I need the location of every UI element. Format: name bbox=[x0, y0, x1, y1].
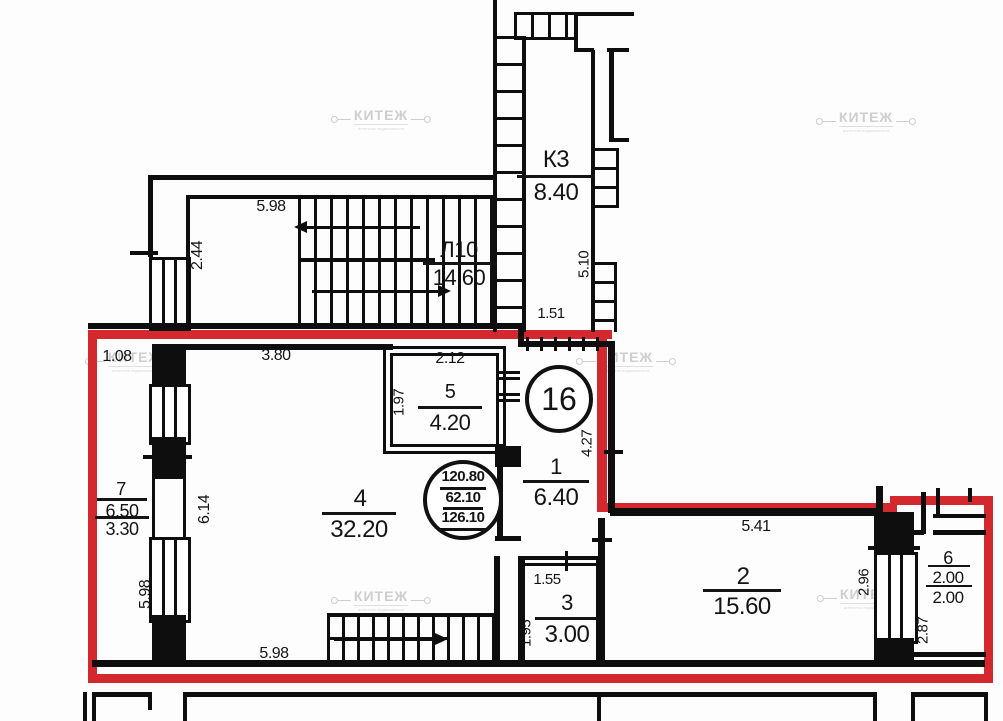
dim-label: 5.10 bbox=[574, 235, 594, 293]
wall-segment bbox=[83, 692, 87, 721]
room-k3-area: 8.40 bbox=[516, 181, 596, 205]
watermark: КИТЕЖагентство недвижимости bbox=[583, 349, 669, 373]
area-total: 120.80 bbox=[440, 469, 487, 490]
dim-label: 5.98 bbox=[249, 646, 299, 662]
watermark-brand: КИТЕЖ bbox=[354, 107, 408, 123]
dim-label: 2.44 bbox=[188, 226, 208, 284]
red-boundary-jog-right bbox=[890, 496, 993, 505]
room-2-area: 15.60 bbox=[702, 595, 782, 619]
wall-segment bbox=[609, 138, 629, 142]
wall-segment bbox=[495, 536, 521, 541]
watermark-brand: КИТЕЖ bbox=[354, 588, 408, 604]
dim-label: 2.12 bbox=[425, 351, 475, 367]
room-2-number: 2 bbox=[723, 565, 763, 589]
wall-tick bbox=[968, 488, 972, 502]
watermark: КИТЕЖагентство недвижимости bbox=[338, 588, 424, 612]
wall-segment bbox=[152, 461, 186, 479]
room-l10-area: 14.60 bbox=[419, 267, 499, 289]
watermark-flourish-icon bbox=[824, 598, 837, 599]
dim-label: 3.80 bbox=[251, 348, 301, 364]
wall-segment bbox=[494, 556, 500, 664]
room-3-number: 3 bbox=[547, 592, 587, 614]
wall-segment bbox=[95, 692, 152, 697]
wall-segment bbox=[609, 48, 614, 142]
wall-segment bbox=[933, 514, 986, 518]
wall-tick bbox=[565, 551, 568, 571]
red-boundary-left bbox=[88, 330, 97, 683]
wall-segment bbox=[518, 556, 604, 560]
room-1-divider bbox=[523, 480, 589, 483]
stair-arrow-up-head-icon bbox=[294, 221, 307, 233]
room-3-divider bbox=[535, 617, 599, 620]
wall-segment bbox=[596, 556, 605, 666]
wall-tick bbox=[130, 251, 158, 255]
wall-segment bbox=[574, 12, 578, 52]
dim-label: 1.97 bbox=[390, 374, 408, 430]
watermark: КИТЕЖагентство недвижимости bbox=[338, 107, 424, 131]
wall-tick bbox=[592, 538, 612, 542]
room-5-divider bbox=[418, 406, 482, 409]
room-6-area-total: 2.00 bbox=[925, 569, 971, 586]
dim-label: 1.55 bbox=[522, 572, 572, 587]
room-1-number: 1 bbox=[536, 456, 576, 478]
wall-tick bbox=[604, 450, 623, 454]
wall-tick bbox=[936, 488, 940, 516]
wall-segment bbox=[148, 692, 152, 710]
watermark-flourish-icon bbox=[338, 119, 351, 120]
room-7-area-counted: 3.30 bbox=[97, 520, 147, 538]
wall-hatch bbox=[526, 337, 608, 351]
wall-segment bbox=[183, 692, 877, 697]
room-6-divider-2 bbox=[926, 585, 972, 587]
wall-tick bbox=[143, 455, 192, 459]
dim-label: 2.87 bbox=[913, 602, 933, 658]
window bbox=[874, 552, 918, 644]
room-6-divider bbox=[928, 565, 970, 567]
room-5-area: 4.20 bbox=[418, 412, 482, 434]
room-1-area: 6.40 bbox=[523, 486, 589, 510]
room-7-number: 7 bbox=[101, 480, 141, 498]
stair-arrow-exit-head-icon bbox=[435, 633, 448, 645]
watermark-flourish-icon bbox=[338, 600, 351, 601]
watermark-tagline: агентство недвижимости bbox=[839, 126, 893, 133]
hatched-wall bbox=[591, 262, 617, 332]
wall-segment bbox=[873, 692, 877, 721]
dim-label: 2.96 bbox=[854, 554, 874, 610]
red-boundary-right-upper bbox=[597, 330, 607, 511]
watermark: КИТЕЖагентство недвижимости bbox=[823, 109, 909, 133]
window bbox=[149, 257, 191, 331]
stair-arrow-down bbox=[312, 290, 440, 293]
room-4-divider bbox=[322, 512, 396, 515]
dim-label: 6.14 bbox=[195, 480, 215, 538]
area-with-balconies: 126.10 bbox=[440, 510, 487, 531]
apartment-number: 16 bbox=[541, 381, 577, 418]
room-k3-divider bbox=[517, 175, 595, 178]
dim-label: 5.98 bbox=[246, 199, 296, 215]
red-boundary-bottom bbox=[88, 674, 993, 683]
wall-segment bbox=[608, 341, 615, 513]
watermark-flourish-icon bbox=[583, 361, 596, 362]
room-4-area: 32.20 bbox=[320, 518, 398, 542]
door-opening-jamb bbox=[183, 479, 186, 539]
wall-segment bbox=[92, 692, 96, 721]
wall-segment bbox=[921, 492, 926, 534]
wall-segment bbox=[152, 615, 186, 663]
watermark-tagline: агентство недвижимости bbox=[354, 605, 408, 612]
wall-segment bbox=[610, 508, 878, 516]
wall-segment bbox=[92, 660, 985, 667]
room-l10-number: Л10 bbox=[419, 239, 499, 261]
wall-tick bbox=[868, 546, 920, 550]
room-3-area: 3.00 bbox=[533, 623, 601, 647]
wall-segment bbox=[933, 530, 986, 535]
watermark-flourish-icon bbox=[411, 119, 424, 120]
dim-label: 4.27 bbox=[577, 415, 597, 471]
watermark-flourish-icon bbox=[823, 121, 836, 122]
wall-segment bbox=[578, 12, 634, 16]
wall-segment bbox=[911, 692, 915, 721]
dim-label: 1.08 bbox=[92, 349, 142, 365]
floor-plan: КИТЕЖагентство недвижимости КИТЕЖагентст… bbox=[0, 0, 1003, 721]
room-k3-number: К3 bbox=[516, 148, 596, 172]
stair-arrow-exit bbox=[334, 638, 437, 641]
area-summary-stamp: 120.80 62.10 126.10 bbox=[423, 460, 503, 540]
wall-segment bbox=[882, 530, 924, 535]
dim-label: 5.98 bbox=[136, 565, 156, 623]
stair-arrow-up bbox=[306, 226, 420, 229]
watermark-flourish-icon bbox=[896, 121, 909, 122]
wall-hatch bbox=[497, 393, 520, 396]
room-4-number: 4 bbox=[340, 487, 380, 511]
wall-segment bbox=[518, 563, 604, 566]
door-opening-jamb bbox=[152, 479, 155, 539]
wall-segment bbox=[911, 692, 988, 697]
room-5-number: 5 bbox=[430, 382, 470, 402]
wall-segment bbox=[148, 175, 497, 180]
window bbox=[514, 12, 578, 40]
room-2-divider bbox=[703, 589, 781, 592]
wall-hatch bbox=[497, 371, 520, 374]
window bbox=[149, 384, 191, 445]
wall-segment bbox=[183, 692, 187, 721]
wall-hatch bbox=[497, 377, 520, 380]
wall-segment bbox=[597, 692, 601, 721]
watermark-tagline: агентство недвижимости bbox=[354, 124, 408, 131]
watermark-flourish-icon bbox=[411, 600, 424, 601]
area-living: 62.10 bbox=[443, 490, 482, 511]
wall-segment bbox=[984, 692, 988, 721]
dim-label: 1.51 bbox=[526, 306, 576, 321]
wall-segment bbox=[874, 638, 914, 662]
watermark-flourish-icon bbox=[656, 361, 669, 362]
wall-segment bbox=[152, 344, 186, 386]
wall-segment bbox=[876, 486, 883, 512]
stair-landing-line bbox=[298, 258, 435, 262]
dim-label: 5.41 bbox=[731, 519, 781, 535]
dim-label: 1.95 bbox=[517, 605, 535, 661]
watermark-brand: КИТЕЖ bbox=[839, 109, 893, 125]
wall-hatch bbox=[497, 399, 520, 402]
wall-segment bbox=[148, 175, 153, 257]
